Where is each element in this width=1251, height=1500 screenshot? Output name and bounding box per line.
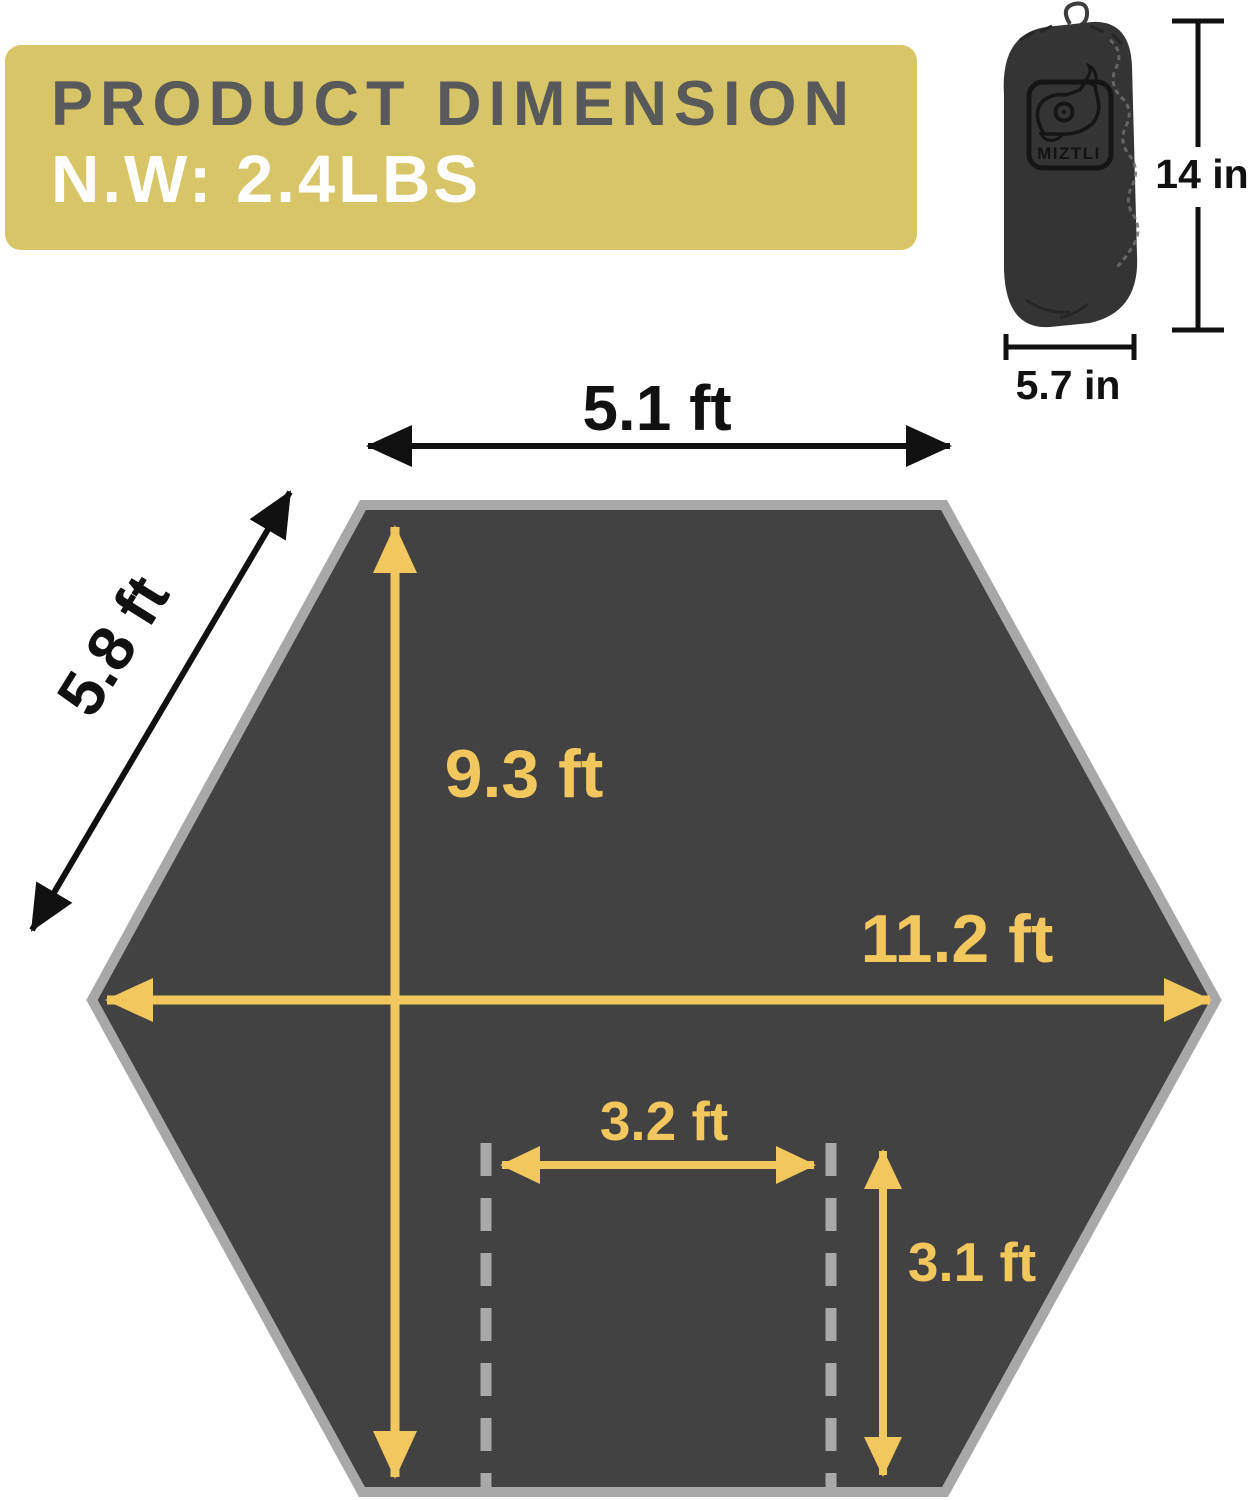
tarp-side-length-label: 5.8 ft [43, 563, 183, 728]
sack-height-label: 14 in [1155, 151, 1248, 197]
tarp-top-width-label: 5.1 ft [582, 372, 731, 444]
door-height-label: 3.1 ft [908, 1231, 1036, 1293]
sack-width-label: 5.7 in [1016, 362, 1121, 408]
tarp-width-label: 11.2 ft [861, 901, 1054, 977]
brand-name: MIZTLI [1037, 144, 1101, 163]
drawstring-loop [1066, 3, 1087, 26]
tarp-height-label: 9.3 ft [445, 736, 604, 812]
product-dimension-infographic: PRODUCT DIMENSION N.W: 2.4LBS [0, 0, 1251, 1500]
door-width-label: 3.2 ft [600, 1090, 728, 1152]
dimension-diagram: MIZTLI 14 in 5.7 in 5.1 ft 5.8 ft 9.3 ft [0, 0, 1251, 1500]
sack-width-dimension: 5.7 in [1006, 334, 1134, 408]
stuff-sack-image: MIZTLI [1004, 3, 1138, 327]
sack-height-dimension: 14 in [1155, 21, 1248, 330]
